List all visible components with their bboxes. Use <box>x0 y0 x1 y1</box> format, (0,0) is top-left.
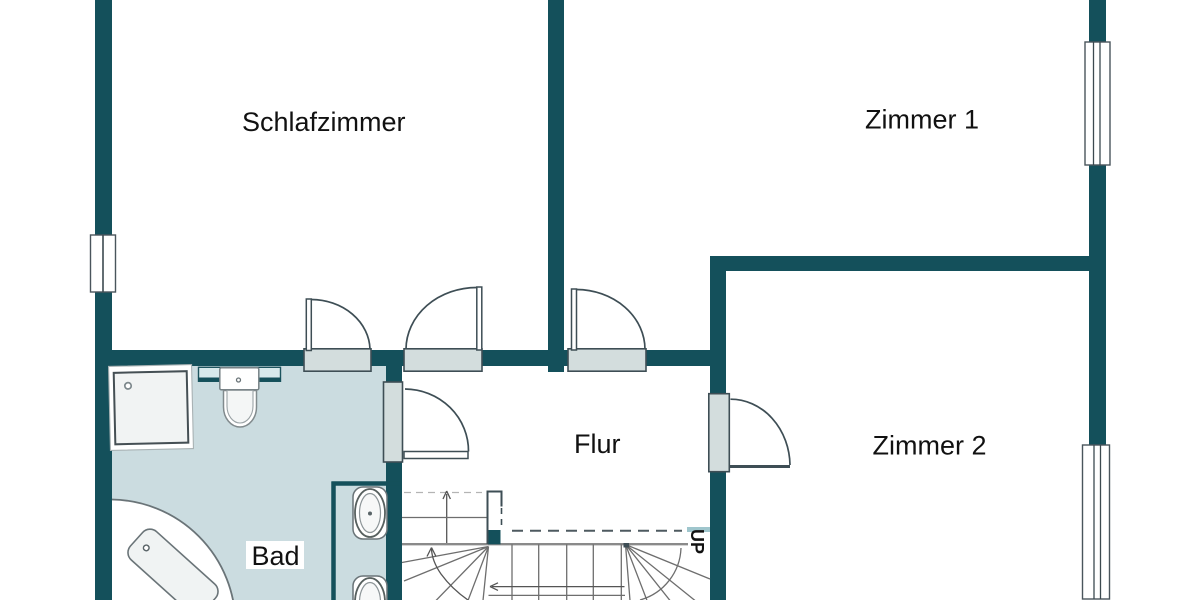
svg-text:UP: UP <box>687 529 707 554</box>
svg-text:Schlafzimmer: Schlafzimmer <box>242 107 406 137</box>
svg-text:Bad: Bad <box>252 541 300 571</box>
svg-text:Flur: Flur <box>574 429 621 459</box>
svg-text:Zimmer 1: Zimmer 1 <box>865 105 979 135</box>
svg-text:Zimmer 2: Zimmer 2 <box>873 431 987 461</box>
